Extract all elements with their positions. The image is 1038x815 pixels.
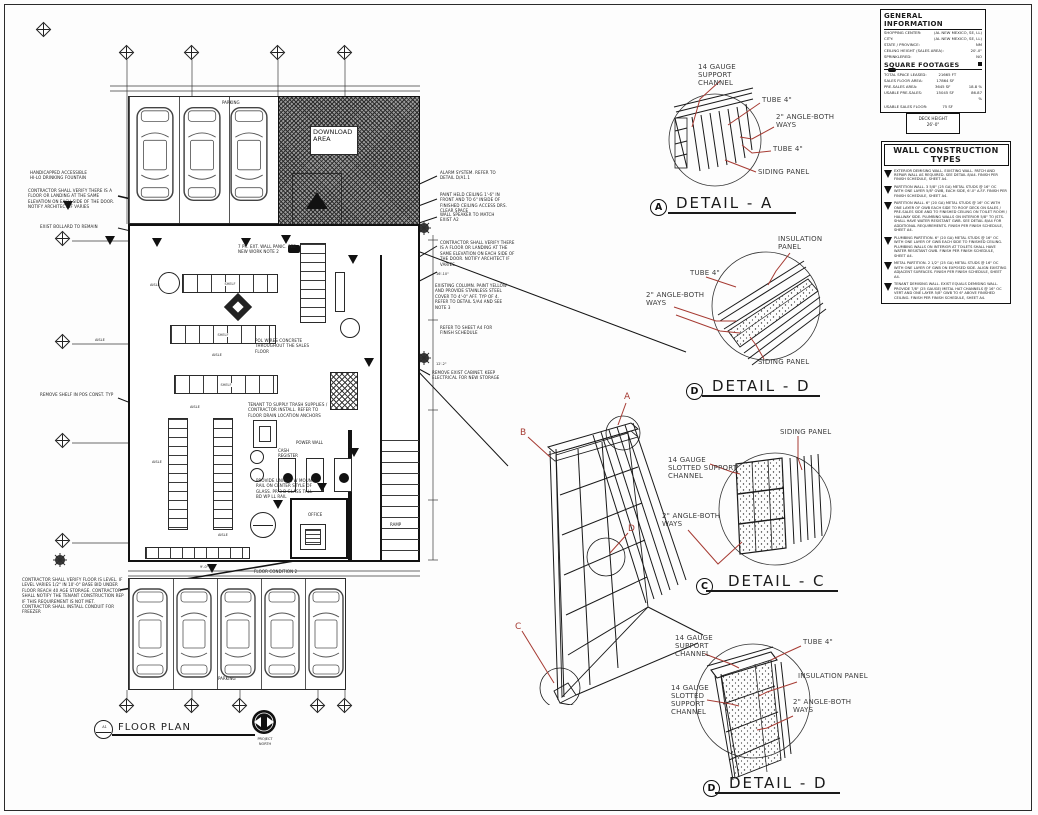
wall-type-item: EXTERIOR DEMISING WALL. EXISTING WALL. P… <box>882 167 1010 183</box>
plan-note: REMOVE EXIST CABINET. KEEP ELECTRICAL FO… <box>432 370 502 381</box>
wall-type-marker <box>317 483 327 492</box>
cash-register-label: CASH REGISTER <box>278 448 300 458</box>
wall-type-triangle-icon <box>884 185 892 198</box>
wall-type-triangle-icon <box>884 169 892 182</box>
wall-type-triangle-icon <box>884 236 892 258</box>
callout-siding: SIDING PANEL <box>758 358 809 366</box>
callout-angle: 2" ANGLE-BOTH WAYS <box>793 698 855 714</box>
square-footages-title: SQUARE FOOTAGES <box>884 61 982 70</box>
car <box>182 102 222 206</box>
iso-marker-a: A <box>624 392 631 402</box>
car <box>229 102 269 206</box>
aisle-label: AISLE <box>152 460 162 465</box>
produce-cooler <box>300 243 326 323</box>
wall-type-marker <box>105 236 115 245</box>
aisle-label: AISLE <box>212 353 222 358</box>
iso-marker-b: B <box>520 428 526 438</box>
plan-note: POL WIRES CONCRETE THROUGHOUT THE SALES … <box>255 338 310 354</box>
column-tag <box>340 318 360 338</box>
detail-d2-bubble: D <box>703 780 720 797</box>
iso-marker-d: D <box>628 524 635 534</box>
aisle-label: AISLE <box>95 338 105 343</box>
callout-angle: 2" ANGLE-BOTH WAYS <box>776 113 838 129</box>
office-desk <box>300 524 326 550</box>
callout-siding: SIDING PANEL <box>758 168 809 176</box>
detail-d1-block: INSULATION PANEL TUBE 4" 2" ANGLE-BOTH W… <box>640 225 860 407</box>
dim-label: 12'-2" <box>436 362 447 367</box>
wall-fixture <box>335 272 345 312</box>
wall-construction-types-title: WALL CONSTRUCTION TYPES <box>884 144 1009 166</box>
general-information-title: GENERAL INFORMATION <box>884 12 982 30</box>
alarm-triangle-icon <box>306 192 328 209</box>
callout-support-channel: 14 GAUGE SUPPORT CHANNEL <box>698 63 762 87</box>
callout-angle: 2" ANGLE-BOTH WAYS <box>662 512 724 528</box>
plan-note: TENANT TO SUPPLY TRASH SUPPLIES / CONTRA… <box>248 402 333 418</box>
detail-a-title: DETAIL - A <box>676 194 773 212</box>
callout-tube: TUBE 4" <box>690 269 720 277</box>
shelf-column <box>213 418 233 530</box>
plan-note: CONTRACTOR SHALL VERIFY FLOOR IS LEVEL. … <box>22 577 124 615</box>
floor-plan-title: FLOOR PLAN <box>118 722 191 733</box>
callout-support-channel: 14 GAUGE SUPPORT CHANNEL <box>675 634 733 658</box>
plan-note: REFER TO SHEET A4 FOR FINISH SCHEDULE <box>440 325 500 336</box>
plan-note: CONTRACTOR SHALL VERIFY THERE IS A FLOOR… <box>440 240 518 267</box>
callout-angle: 2" ANGLE-BOTH WAYS <box>646 291 710 307</box>
detail-d2-block: 14 GAUGE SUPPORT CHANNEL TUBE 4" 14 GAUG… <box>635 612 885 804</box>
shelf-row: SHELF <box>182 274 278 293</box>
callout-slotted: 14 GAUGE SLOTTED SUPPORT CHANNEL <box>671 684 733 716</box>
dim-label: 16'-10" <box>436 272 449 277</box>
wall-construction-types-box: WALL CONSTRUCTION TYPES EXTERIOR DEMISIN… <box>881 141 1011 304</box>
wall-type-triangle-icon <box>884 201 892 232</box>
aisle-label: AISLE <box>190 405 200 410</box>
office-label: OFFICE <box>308 512 322 517</box>
plan-note: HANDICAPPED ACCESSIBLE HI-LO DRINKING FO… <box>30 170 92 181</box>
power-wall-label: POWER WALL <box>296 440 323 445</box>
floor-plan-bubble: A1 <box>94 720 113 739</box>
general-information-box: GENERAL INFORMATION SHOPPING CENTER:(AL … <box>880 9 986 113</box>
plan-note: ALARM SYSTEM. REFER TO DETAIL D/A1.1 <box>440 170 502 181</box>
round-table <box>158 272 180 294</box>
plan-note: EXISTING COLUMN. PAINT YELLOW AND PROVID… <box>435 283 513 310</box>
callout-insulation: INSULATION PANEL <box>798 672 878 680</box>
checkout-counter-row <box>145 547 250 559</box>
wall-type-item: PARTITION WALL. 6" (20 GA) METAL STUDS @… <box>882 200 1010 234</box>
wall-type-item: PLUMBING PARTITION. 6" (20 GA) METAL STU… <box>882 234 1010 259</box>
wall-type-marker <box>349 448 359 457</box>
wall-type-item: TENANT DEMISING WALL. EXIST EQUALS DEMIS… <box>882 281 1010 302</box>
north-arrow-icon <box>250 708 278 736</box>
wall-type-marker <box>207 564 217 573</box>
car <box>175 583 213 683</box>
callout-tube-2: TUBE 4" <box>773 145 803 153</box>
aisle-label: AISLE <box>218 533 228 538</box>
title-underline <box>112 734 255 736</box>
keynote-circle <box>250 450 264 464</box>
car <box>263 583 301 683</box>
wall-type-marker <box>152 238 162 247</box>
new-wall-infill <box>330 372 358 410</box>
plan-note: PAINT HELD CEILING 1'-6" IN FRONT AND TO… <box>440 192 512 214</box>
detail-d1-title: DETAIL - D <box>712 377 811 395</box>
shelf-column <box>168 418 188 530</box>
detail-c-title: DETAIL - C <box>728 572 826 590</box>
callout-siding: SIDING PANEL <box>780 428 831 436</box>
car <box>131 583 169 683</box>
detail-c-block: SIDING PANEL 14 GAUGE SLOTTED SUPPORT CH… <box>640 422 860 602</box>
detail-c-bubble: C <box>696 578 713 595</box>
wall-type-triangle-icon <box>884 261 892 279</box>
plan-note: 7 PR. EXT. WALL PANIC. SEE NEW WORK NOTE… <box>238 244 298 255</box>
ramp-stripes <box>382 440 419 560</box>
wall-type-item: PARTITION WALL. 3 5/8" (25 GA) METAL STU… <box>882 183 1010 199</box>
detail-a-block: 14 GAUGE SUPPORT CHANNEL TUBE 4" 2" ANGL… <box>640 55 860 225</box>
iso-marker-c: C <box>515 622 521 632</box>
wall-type-triangle-icon <box>884 282 892 300</box>
dim-label: 9'-0" <box>200 565 208 570</box>
wall-type-marker <box>281 235 291 244</box>
shelf-row: SHELF <box>174 375 278 394</box>
plan-note: WALL SPEAKER TO MATCH EXIST A2 <box>440 212 495 223</box>
detail-a-bubble: A <box>650 199 667 216</box>
detail-d1-bubble: D <box>686 383 703 400</box>
ramp-label: RAMP <box>390 522 401 527</box>
checkout-station <box>334 458 352 492</box>
callout-tube-1: TUBE 4" <box>762 96 792 104</box>
deck-height-box: DECK HEIGHT 26'-0" <box>906 113 960 134</box>
detail-d2-title: DETAIL - D <box>729 774 828 792</box>
trash-cart <box>253 420 277 448</box>
plan-note: FLOOR CONDITION 2 <box>254 569 314 574</box>
north-label: PROJECT NORTH <box>252 737 278 746</box>
drawing-sheet: PARKING DOWNLOAD AREA SHELF SHELF SHELF … <box>0 0 1038 815</box>
car <box>219 583 257 683</box>
car <box>307 583 345 683</box>
callout-tube: TUBE 4" <box>803 638 833 646</box>
aisle-label: AISLE <box>150 283 160 288</box>
wall-type-item: METAL PARTITION. 2 1/2" (25 GA) METAL ST… <box>882 260 1010 281</box>
wall-type-marker <box>364 358 374 367</box>
download-area-label: DOWNLOAD AREA <box>310 126 358 155</box>
car <box>135 102 175 206</box>
plan-note: EXIST BOLLARD TO REMAIN <box>40 224 115 229</box>
wall-type-marker <box>273 500 283 509</box>
plan-note: PROVIDE UNIQUE W MOUNT RAIL ON CENTER ST… <box>256 478 318 500</box>
plan-note: REMOVE SHELF IN POS CONST. TYP <box>40 392 115 397</box>
callout-insulation: INSULATION PANEL <box>778 235 840 251</box>
door-tag <box>250 512 276 538</box>
wall-type-marker <box>348 255 358 264</box>
callout-slotted: 14 GAUGE SLOTTED SUPPORT CHANNEL <box>668 456 738 480</box>
plan-note: CONTRACTOR SHALL VERIFY THERE IS A FLOOR… <box>28 188 118 210</box>
